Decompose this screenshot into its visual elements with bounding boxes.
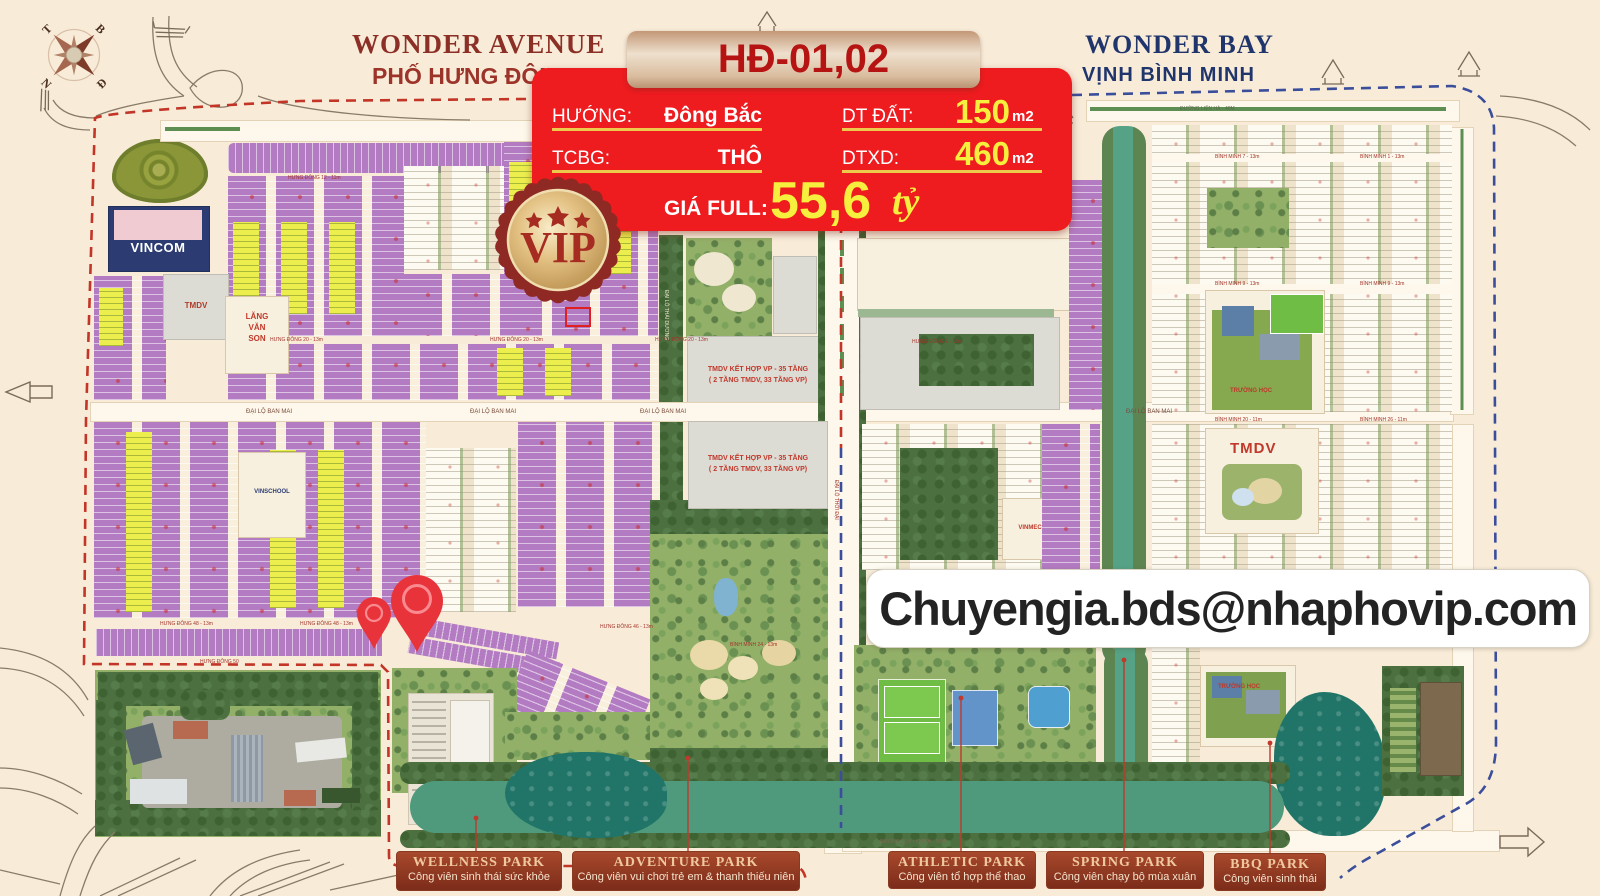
svg-text:N: N <box>38 76 54 92</box>
svg-text:T: T <box>39 21 55 37</box>
svg-text:Đ: Đ <box>94 75 110 91</box>
svg-text:B: B <box>93 21 109 37</box>
svg-text:VIP: VIP <box>520 223 596 272</box>
